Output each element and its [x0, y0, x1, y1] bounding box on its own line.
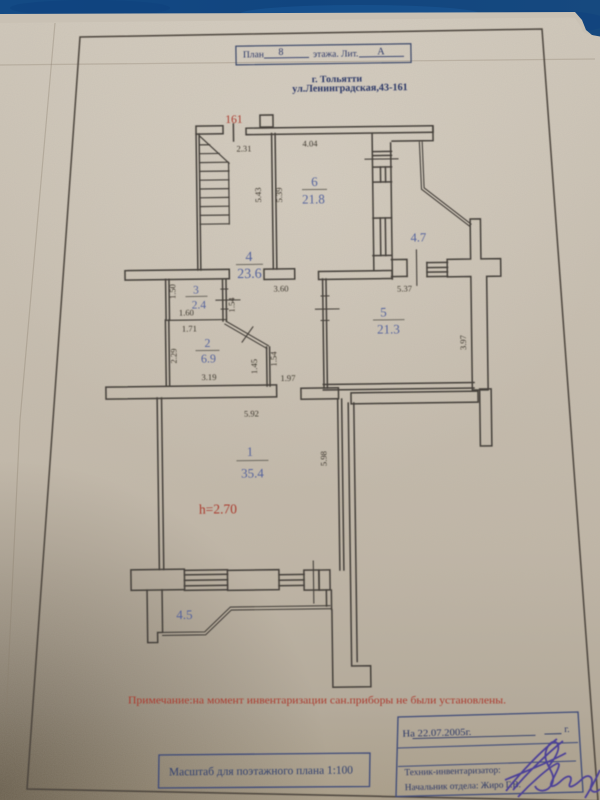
svg-text:161: 161	[225, 114, 243, 126]
svg-text:3.19: 3.19	[201, 372, 216, 382]
svg-text:2: 2	[204, 336, 210, 350]
svg-text:3: 3	[193, 284, 199, 296]
svg-text:5.37: 5.37	[397, 283, 413, 293]
svg-text:8: 8	[278, 47, 283, 58]
svg-text:1.60: 1.60	[179, 307, 194, 317]
svg-text:ул.Ленинградская,43-161: ул.Ленинградская,43-161	[292, 82, 408, 95]
svg-text:4.04: 4.04	[302, 138, 318, 148]
svg-text:6: 6	[311, 174, 318, 189]
svg-text:5.98: 5.98	[318, 451, 328, 466]
svg-text:2.29: 2.29	[168, 348, 178, 363]
svg-text:3.97: 3.97	[458, 334, 468, 350]
svg-text:h=2.70: h=2.70	[199, 501, 237, 516]
svg-text:1: 1	[247, 444, 254, 459]
svg-text:4: 4	[245, 250, 252, 265]
svg-text:21.3: 21.3	[377, 321, 400, 336]
svg-text:35.4: 35.4	[241, 465, 264, 480]
svg-text:Примечание:на момент инвентари: Примечание:на момент инвентаризации сан.…	[128, 696, 506, 707]
svg-text:План: План	[243, 50, 264, 60]
svg-text:А: А	[377, 46, 385, 57]
svg-text:5.92: 5.92	[244, 408, 259, 418]
svg-text:5.43: 5.43	[253, 187, 263, 202]
svg-text:1.54: 1.54	[268, 351, 278, 367]
svg-text:5.39: 5.39	[274, 187, 284, 202]
svg-text:этажа. Лит.: этажа. Лит.	[313, 49, 359, 60]
svg-text:1.97: 1.97	[280, 373, 296, 383]
svg-text:21.8: 21.8	[302, 191, 325, 206]
svg-text:5: 5	[380, 304, 387, 319]
svg-text:1.71: 1.71	[182, 323, 197, 333]
svg-text:1.50: 1.50	[167, 284, 177, 299]
svg-text:4.5: 4.5	[176, 607, 192, 622]
svg-text:23.6: 23.6	[237, 267, 262, 282]
svg-text:г.: г.	[564, 725, 569, 735]
svg-text:1.54: 1.54	[226, 297, 236, 313]
svg-text:1.45: 1.45	[249, 359, 259, 374]
svg-text:Масштаб для поэтажного плана 1: Масштаб для поэтажного плана 1:100	[169, 765, 353, 779]
svg-text:4.7: 4.7	[411, 230, 427, 244]
svg-text:2.31: 2.31	[236, 143, 251, 153]
svg-text:6.9: 6.9	[201, 351, 216, 365]
svg-text:3.60: 3.60	[273, 283, 288, 293]
